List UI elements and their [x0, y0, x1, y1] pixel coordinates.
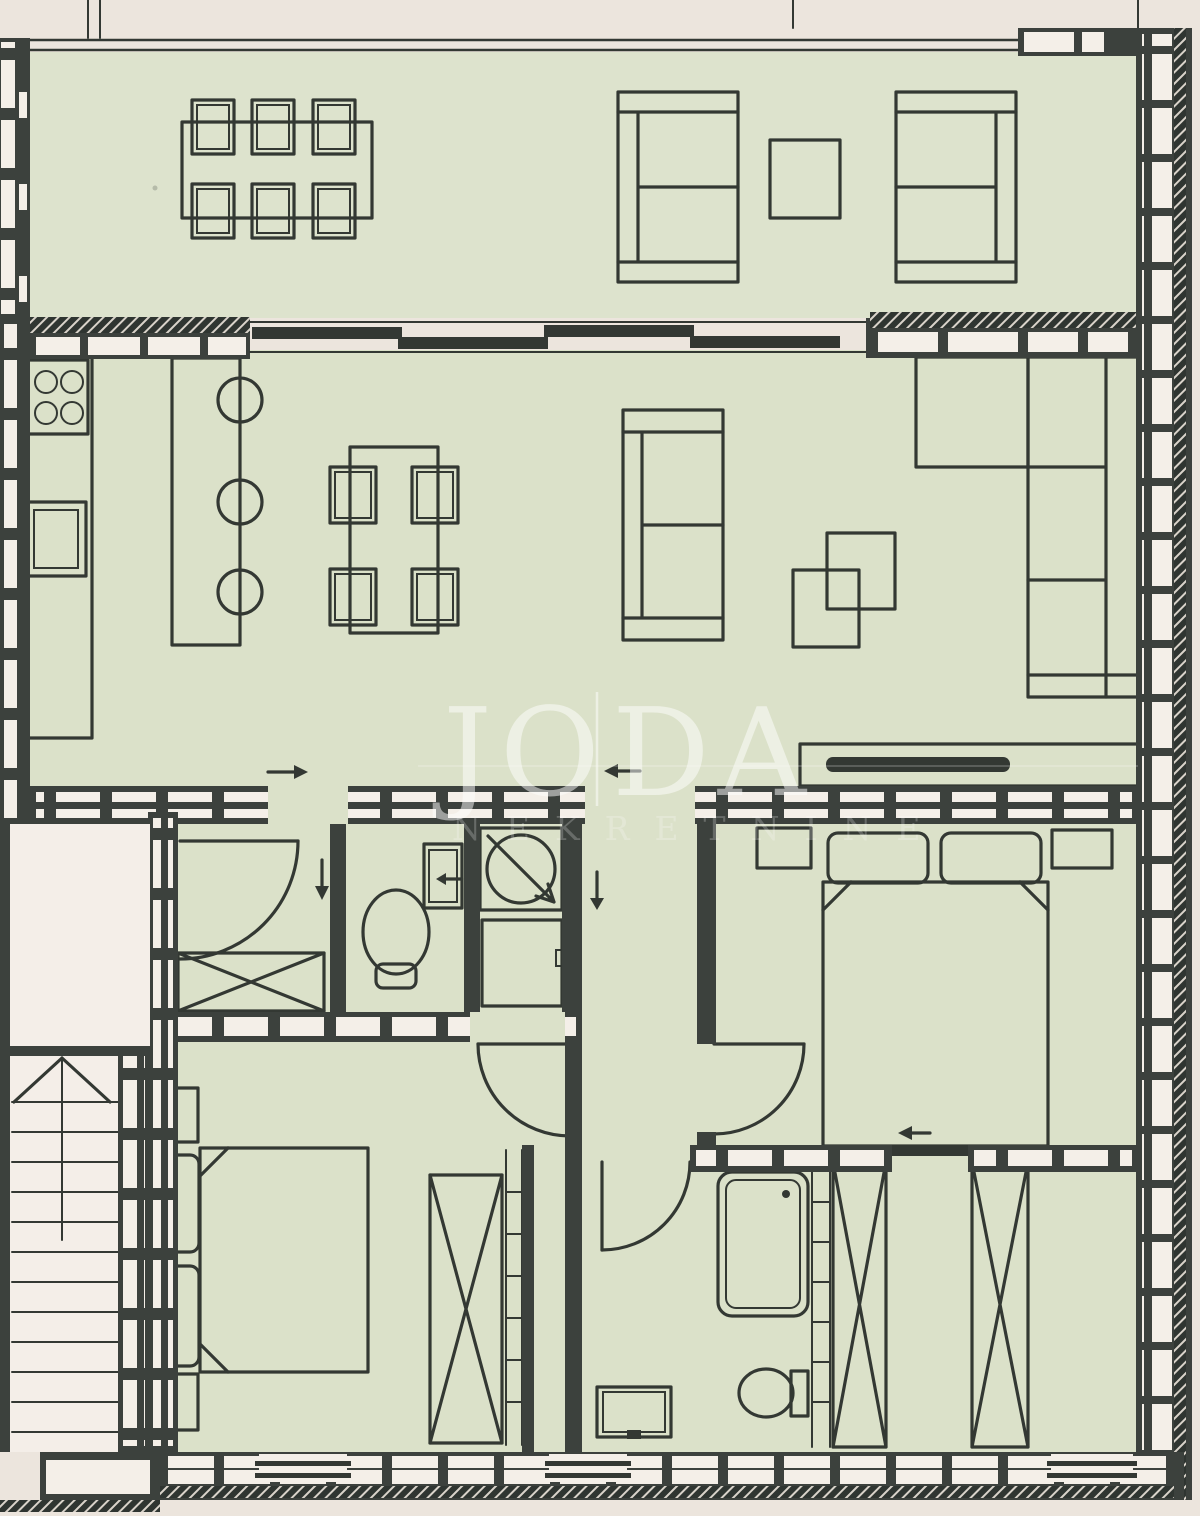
bedroom-top-wall — [150, 1012, 582, 1042]
floor-plan-drawing: JO DA NEKRETNINE — [0, 0, 1200, 1516]
stair-landing — [0, 824, 150, 1050]
window-hatch — [30, 317, 250, 333]
window-icon — [255, 1454, 351, 1482]
partition — [522, 1145, 534, 1452]
basin-tap — [627, 1430, 641, 1439]
right-exterior-wall — [1136, 28, 1192, 1500]
watermark-subtitle: NEKRETNINE — [452, 809, 945, 848]
partition — [330, 824, 346, 1012]
tv-icon — [826, 757, 1010, 772]
door-opening — [470, 1012, 565, 1042]
scan-speck — [153, 186, 158, 191]
sliding-glass-door-icon — [30, 312, 1138, 359]
terrace-railing — [30, 40, 1020, 50]
partition — [565, 1030, 582, 1452]
shower-drain — [782, 1190, 790, 1198]
window-icon — [1047, 1454, 1137, 1482]
bottom-exterior-wall — [0, 1452, 1184, 1512]
watermark-brand-right: DA — [612, 682, 814, 824]
window-icon — [545, 1454, 631, 1482]
watermark-brand-left: JO — [432, 682, 608, 824]
site-lines — [88, 0, 1138, 38]
wall-opening — [268, 786, 348, 824]
master-bedroom-wall — [697, 824, 716, 1044]
partition — [464, 824, 480, 1012]
stairwell — [0, 824, 150, 1452]
partition — [562, 824, 582, 1030]
floor-plan-scan: JO DA NEKRETNINE — [0, 0, 1200, 1516]
threshold — [892, 1147, 968, 1156]
